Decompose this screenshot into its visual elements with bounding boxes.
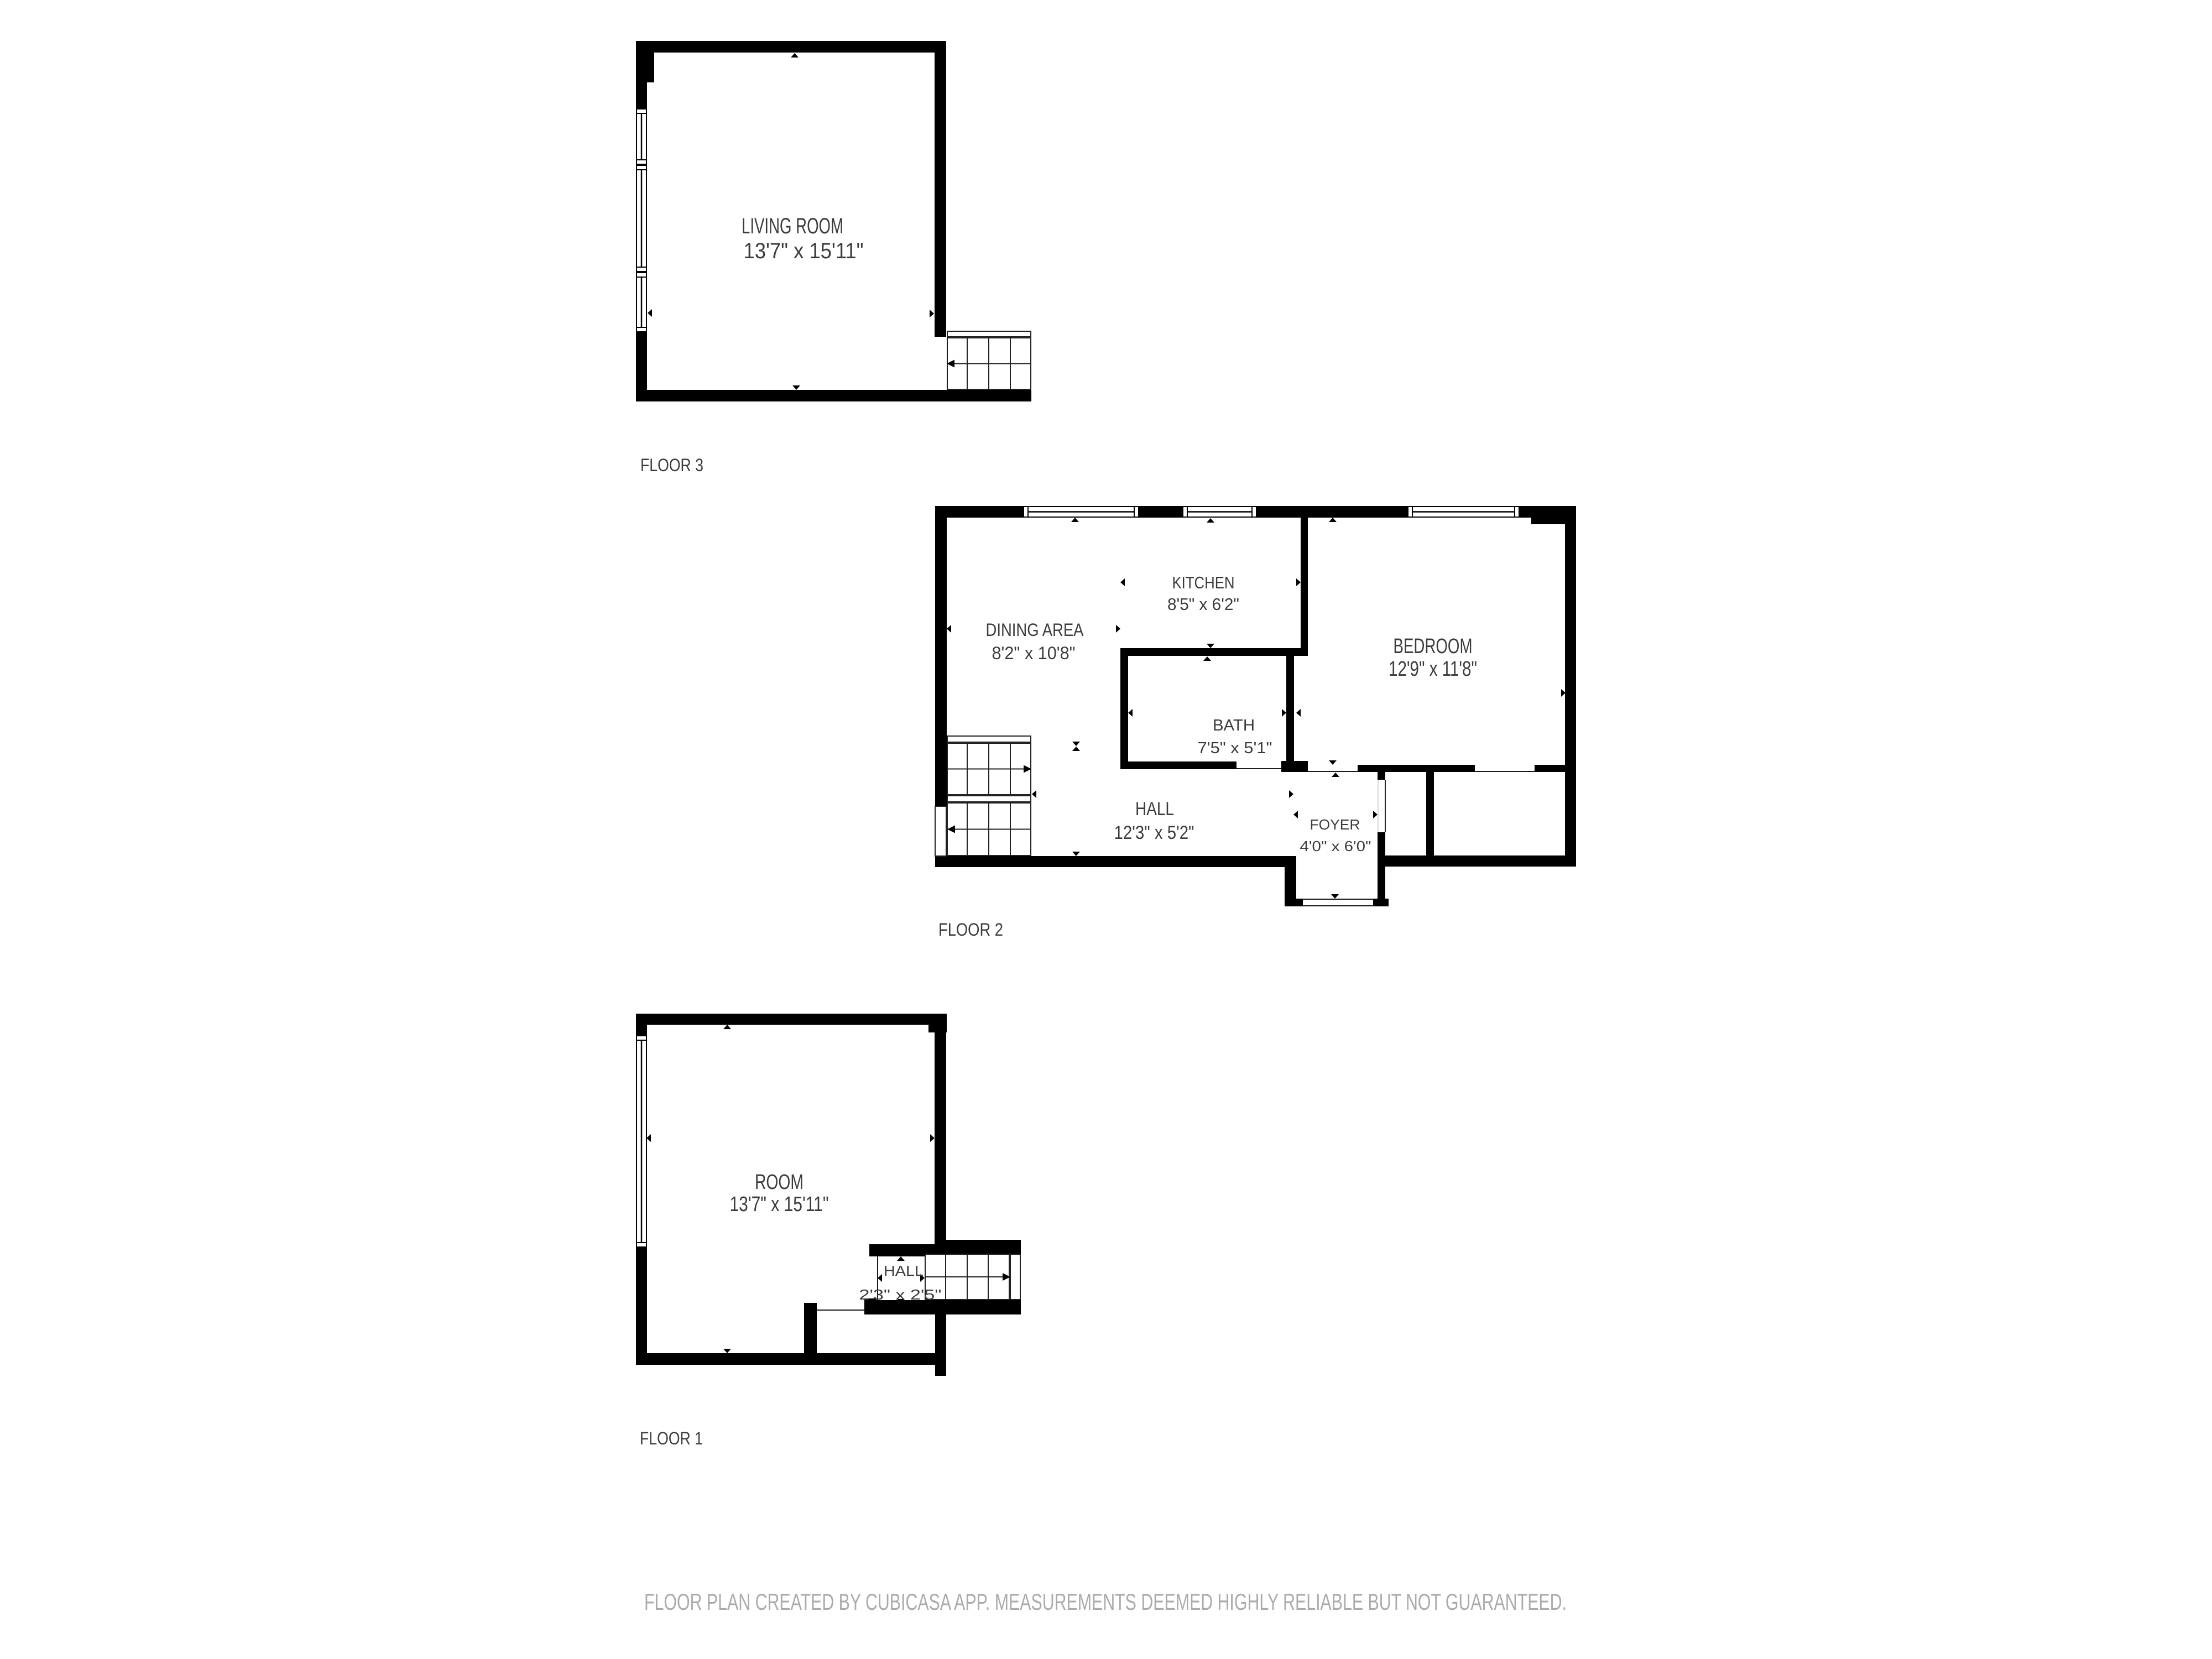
svg-text:LIVING ROOM: LIVING ROOM	[742, 214, 843, 238]
svg-text:ROOM: ROOM	[755, 1171, 804, 1194]
svg-text:13'7" x 15'11": 13'7" x 15'11"	[744, 239, 864, 263]
svg-text:12'9" x 11'8": 12'9" x 11'8"	[1389, 658, 1477, 681]
svg-text:FLOOR 3: FLOOR 3	[640, 455, 703, 475]
svg-text:2'3" x 2'5": 2'3" x 2'5"	[859, 1286, 942, 1303]
svg-text:8'2" x 10'8": 8'2" x 10'8"	[992, 643, 1076, 663]
svg-text:12'3" x 5'2": 12'3" x 5'2"	[1114, 822, 1194, 843]
svg-text:BEDROOM: BEDROOM	[1394, 635, 1473, 658]
svg-text:FOYER: FOYER	[1310, 816, 1360, 833]
svg-text:FLOOR 1: FLOOR 1	[640, 1428, 703, 1448]
svg-text:FLOOR PLAN CREATED BY CUBICASA: FLOOR PLAN CREATED BY CUBICASA APP. MEAS…	[644, 1589, 1567, 1615]
svg-text:4'0" x 6'0": 4'0" x 6'0"	[1300, 838, 1371, 854]
svg-text:13'7" x 15'11": 13'7" x 15'11"	[730, 1193, 829, 1216]
svg-text:BATH: BATH	[1213, 717, 1255, 734]
svg-text:KITCHEN: KITCHEN	[1172, 573, 1235, 592]
svg-text:8'5" x 6'2": 8'5" x 6'2"	[1167, 594, 1239, 614]
svg-text:7'5" x 5'1": 7'5" x 5'1"	[1198, 739, 1272, 757]
svg-text:FLOOR 2: FLOOR 2	[938, 920, 1003, 940]
svg-text:HALL: HALL	[884, 1262, 924, 1279]
svg-text:HALL: HALL	[1135, 799, 1174, 820]
svg-text:DINING AREA: DINING AREA	[986, 620, 1084, 640]
